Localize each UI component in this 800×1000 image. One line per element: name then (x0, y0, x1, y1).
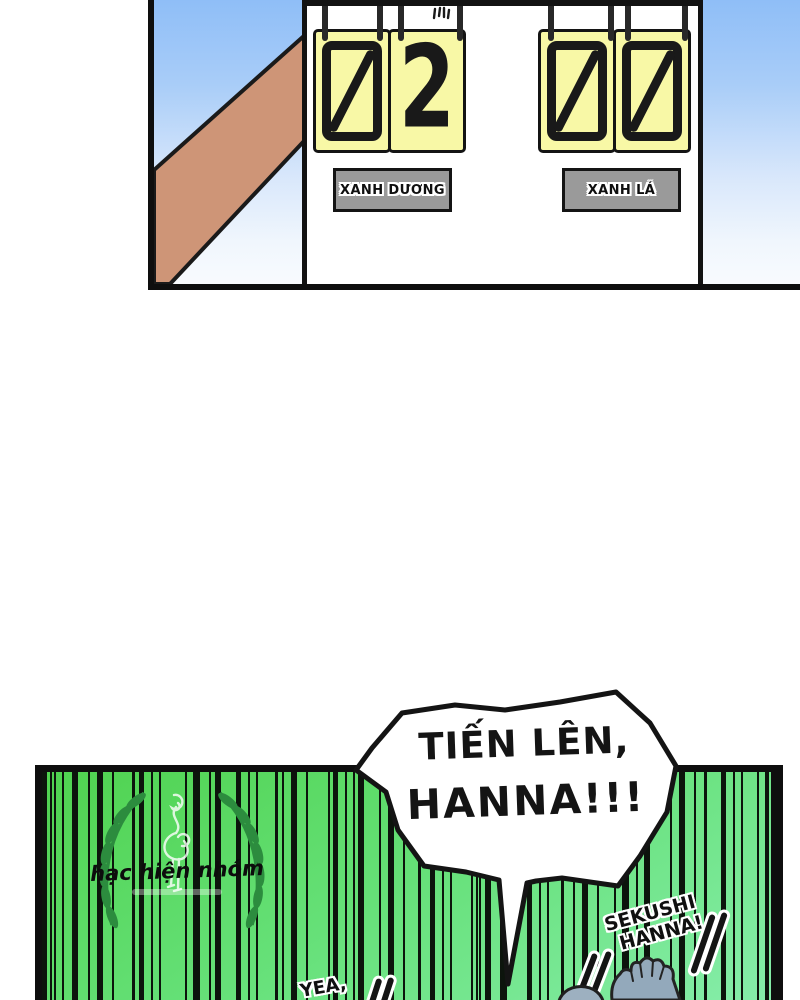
hook-icon (608, 6, 614, 41)
flip-card: 0 (313, 29, 391, 153)
flip-card: 2 (388, 29, 466, 153)
raised-hand-icon (600, 953, 695, 1000)
hook-icon (398, 6, 404, 41)
watermark-subtext (132, 889, 222, 895)
score-digit: 0 (616, 32, 688, 150)
hook-icon (377, 6, 383, 41)
score-digit: 0 (316, 32, 388, 150)
hook-icon (457, 6, 463, 41)
score-digit: 2 (391, 32, 463, 150)
score-digit: 0 (541, 32, 613, 150)
scribble-mark-icon (431, 6, 455, 20)
hook-icon (322, 6, 328, 41)
flip-card: 0 (538, 29, 616, 153)
team-label-green: XANH LÁ (562, 168, 681, 212)
hook-icon (682, 6, 688, 41)
speech-bubble-text: TIẾN LÊN, HANNA!!! (398, 718, 651, 830)
speech-line-2: HANNA!!! (400, 773, 652, 830)
hook-icon (625, 6, 631, 41)
flip-card: 0 (613, 29, 691, 153)
panel-scoreboard-scene: 0 2 0 0 (148, 0, 800, 290)
speech-line-1: TIẾN LÊN, (398, 718, 649, 770)
score-cards-team-blue: 0 2 (313, 29, 466, 153)
team-label-blue: XANH DƯƠNG (333, 168, 452, 212)
comic-page: 0 2 0 0 (0, 0, 800, 1000)
hook-icon (548, 6, 554, 41)
watermark-group: hạc hiện nhóm (72, 777, 292, 947)
score-cards-team-green: 0 0 (538, 29, 691, 153)
scoreboard: 0 2 0 0 (302, 0, 703, 284)
